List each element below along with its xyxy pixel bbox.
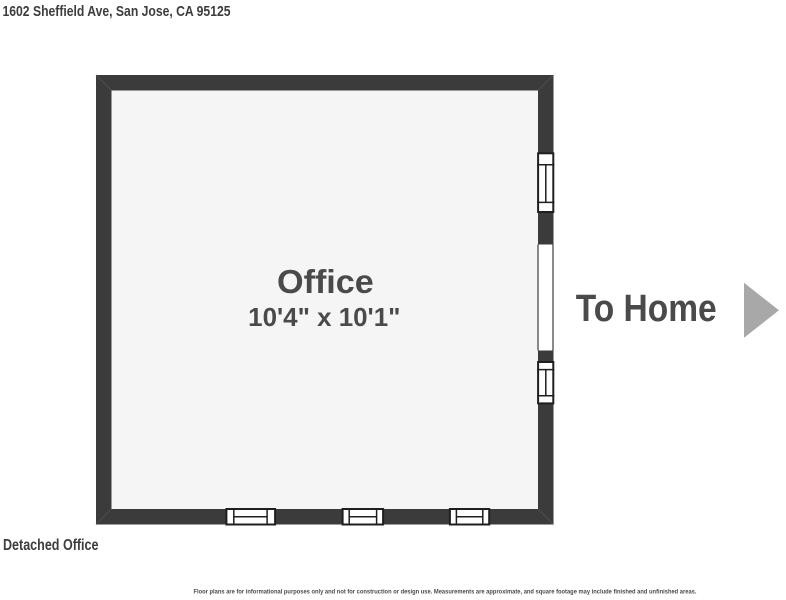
svg-text:To Home: To Home — [576, 287, 717, 329]
svg-text:Detached Office: Detached Office — [3, 537, 99, 554]
svg-text:Floor plans are for informatio: Floor plans are for informational purpos… — [194, 589, 697, 596]
svg-text:1602 Sheffield Ave, San Jose,: 1602 Sheffield Ave, San Jose, CA 95125 — [3, 4, 231, 20]
svg-text:10'4" x 10'1": 10'4" x 10'1" — [248, 302, 400, 332]
svg-text:Office: Office — [277, 264, 374, 301]
